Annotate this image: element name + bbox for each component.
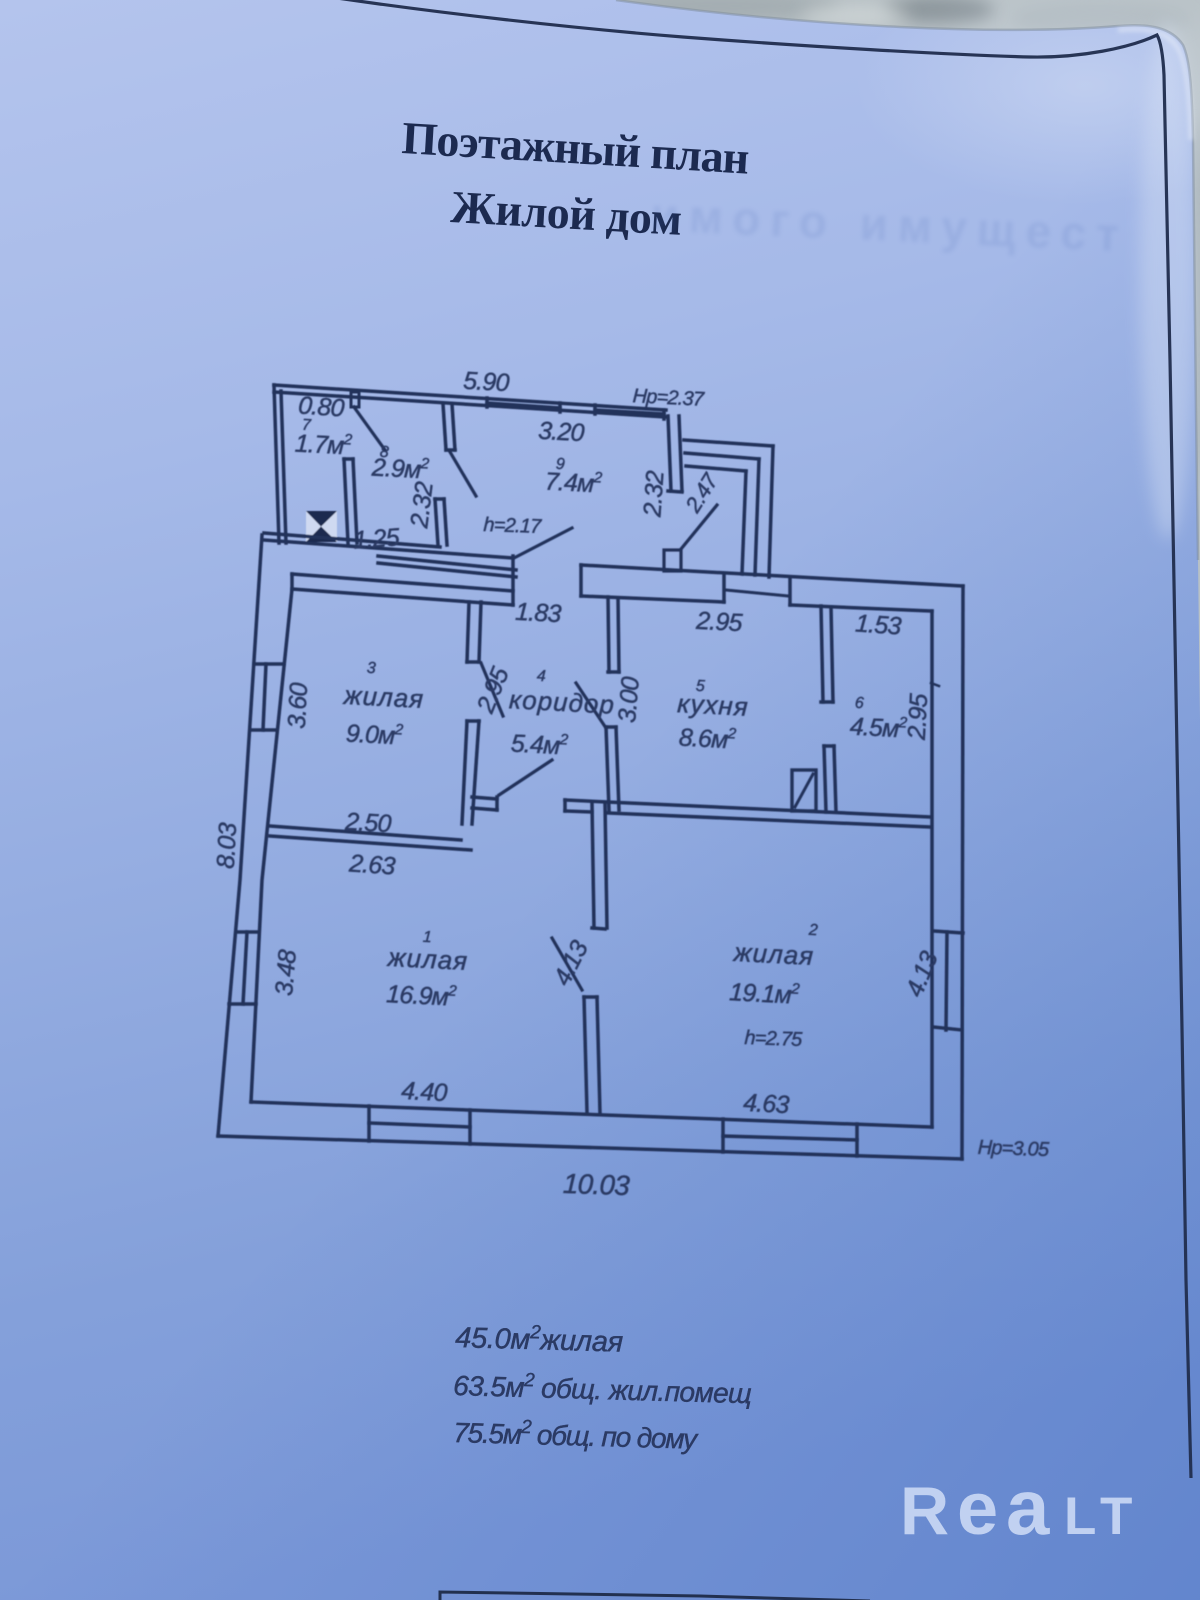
svg-text:5.90: 5.90 — [463, 367, 511, 397]
svg-text:2.32: 2.32 — [405, 480, 439, 530]
svg-text:2.50: 2.50 — [344, 808, 393, 838]
svg-text:3.48: 3.48 — [270, 948, 302, 997]
svg-text:4.40: 4.40 — [401, 1077, 449, 1107]
svg-text:T: T — [1100, 1487, 1132, 1546]
svg-text:19.1м2: 19.1м2 — [729, 977, 801, 1010]
svg-text:h=2.75: h=2.75 — [744, 1027, 803, 1051]
svg-text:1.25: 1.25 — [352, 523, 400, 554]
svg-text:e: e — [957, 1467, 998, 1550]
svg-text:2.32: 2.32 — [638, 470, 669, 519]
svg-text:L: L — [1064, 1487, 1096, 1546]
svg-text:16.9м2: 16.9м2 — [386, 979, 458, 1012]
svg-text:2.95: 2.95 — [695, 607, 744, 637]
svg-text:h=2.17: h=2.17 — [483, 514, 542, 538]
svg-text:2.95: 2.95 — [903, 693, 933, 742]
svg-text:45.0м2жилая: 45.0м2жилая — [455, 1320, 624, 1359]
svg-text:1.83: 1.83 — [515, 598, 563, 628]
svg-text:4.63: 4.63 — [743, 1089, 791, 1119]
svg-text:Нр=3.05: Нр=3.05 — [977, 1137, 1050, 1162]
svg-text:a: a — [1006, 1463, 1050, 1551]
svg-text:кухня: кухня — [677, 688, 750, 722]
svg-text:жилая: жилая — [342, 680, 425, 714]
svg-text:коридор: коридор — [508, 684, 615, 720]
svg-text:3.60: 3.60 — [283, 682, 313, 730]
svg-text:R: R — [900, 1473, 949, 1549]
svg-text:жилая: жилая — [386, 942, 469, 976]
svg-text:2.63: 2.63 — [347, 849, 396, 880]
svg-text:Нр=2.37: Нр=2.37 — [632, 385, 705, 411]
svg-text:3.00: 3.00 — [613, 675, 645, 724]
svg-text:8.03: 8.03 — [212, 822, 242, 870]
svg-text:1.53: 1.53 — [854, 609, 902, 640]
svg-text:жилая: жилая — [732, 937, 815, 971]
svg-text:10.03: 10.03 — [562, 1168, 630, 1201]
svg-text:3.20: 3.20 — [538, 417, 586, 447]
